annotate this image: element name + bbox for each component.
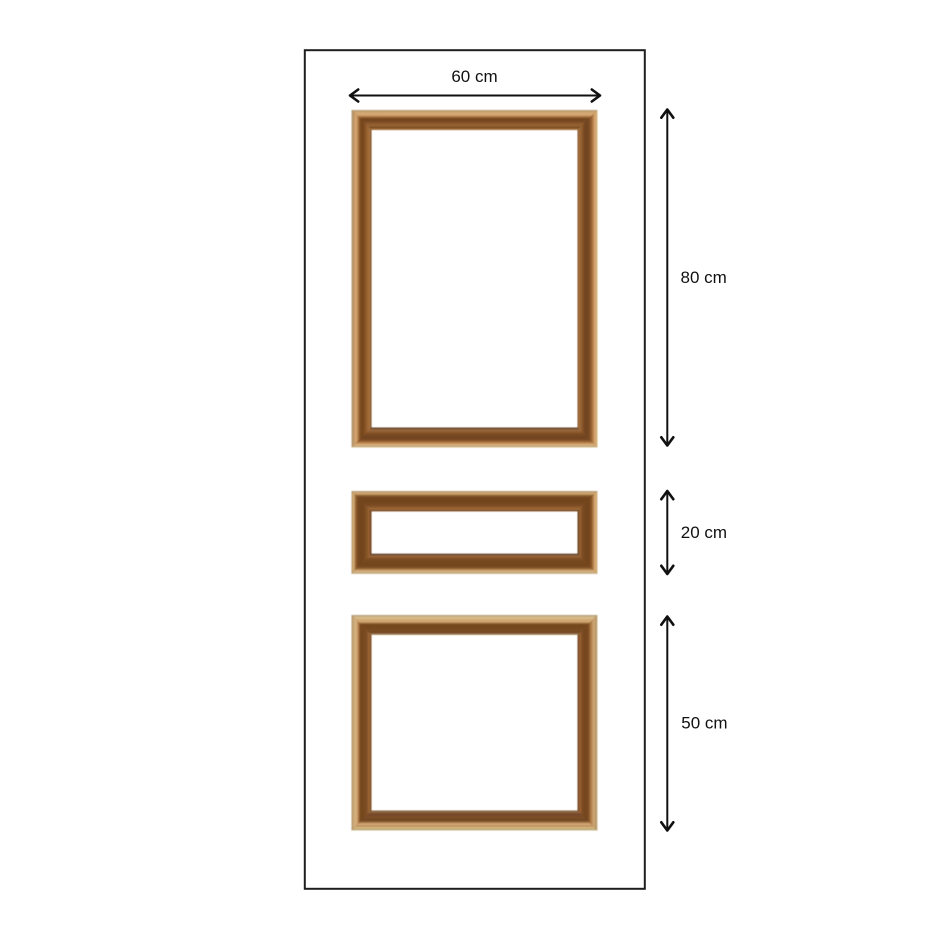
svg-text:50 cm: 50 cm bbox=[681, 714, 727, 733]
svg-text:20 cm: 20 cm bbox=[681, 523, 727, 542]
svg-text:80 cm: 80 cm bbox=[681, 268, 727, 287]
svg-text:60 cm: 60 cm bbox=[451, 67, 497, 86]
